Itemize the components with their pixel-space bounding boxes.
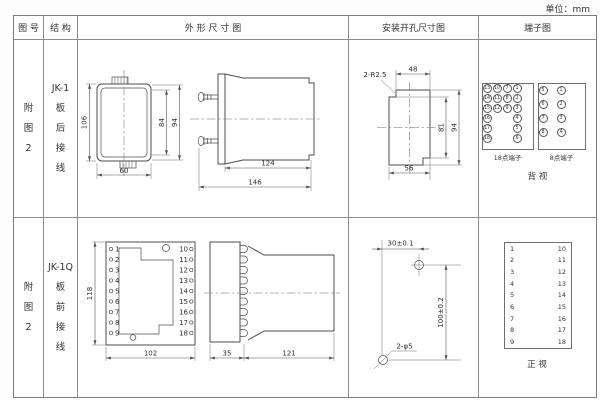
terminal-list-row: 312 [505, 269, 571, 276]
jk1q-side-terminals [240, 246, 248, 337]
terminal-point: 13 [483, 84, 492, 93]
unit-label: 单位：mm [545, 2, 590, 15]
header-structure: 结 构 [44, 16, 78, 40]
terminal-label-18: 18点端子 [479, 152, 536, 162]
wiring-char: 接 [56, 318, 66, 338]
terminal-point: 5 [539, 86, 548, 95]
terminal-number: 2 [510, 257, 514, 264]
terminal-number: 4 [510, 281, 514, 288]
dim-30-label: 30±0.1 [388, 240, 414, 248]
terminal-list-row: 615 [505, 304, 571, 311]
terminal-number: 18 [558, 339, 566, 346]
terminal-number: 5 [115, 287, 119, 295]
terminal-screw-icon [240, 319, 248, 326]
terminal-list-box: 110211312413514615716817918 [504, 242, 572, 349]
row1-terminal-cell: 18点端子 8点端子 背 视 1310711411821512931641751… [479, 40, 596, 218]
header-mounting: 安装开孔尺寸图 [349, 16, 479, 40]
terminal-number: 9 [510, 339, 514, 346]
rear-view-label: 背 视 [479, 170, 596, 182]
terminal-screw-icon [240, 288, 248, 295]
header-fig-no: 图 号 [14, 16, 44, 40]
terminal-list-row: 514 [505, 292, 571, 299]
fig-char: 附 [24, 99, 34, 119]
dim-102-label: 102 [144, 350, 157, 358]
wiring-char: 线 [56, 338, 66, 358]
fig-char: 2 [25, 139, 31, 159]
extension-lines [374, 240, 461, 369]
jk1-side-view [190, 74, 321, 164]
terminal-number: 15 [179, 298, 188, 306]
terminal-number: 8 [510, 327, 514, 334]
dimension-lines [95, 242, 334, 358]
hole-size-label: 2-φ5 [396, 343, 412, 351]
row1-structure: JK-1 板 后 接 线 [44, 40, 78, 218]
dim-84-label: 84 [158, 118, 166, 127]
terminal-point: 15 [483, 104, 492, 113]
terminal-point: 17 [483, 124, 492, 133]
row1-model: JK-1 [52, 79, 70, 99]
terminal-number: 16 [179, 308, 188, 316]
terminal-list-row: 211 [505, 257, 571, 264]
terminal-point: 3 [557, 114, 566, 123]
terminal-point: 8 [539, 128, 548, 137]
terminal-number: 9 [115, 329, 119, 337]
row2-model: JK-1Q [48, 258, 73, 278]
terminal-screw-icon [240, 246, 248, 253]
terminal-number: 7 [510, 316, 514, 323]
wiring-char: 板 [56, 99, 66, 119]
mounting-hole-icon [130, 335, 136, 341]
dim-35-label: 35 [223, 350, 232, 358]
terminal-list-row: 817 [505, 327, 571, 334]
jk1q-mounting-hole-drawing: 30±0.1 100±0.2 2-φ5 [349, 218, 479, 397]
mounting-hole-icon [163, 245, 170, 252]
dim-106-label: 106 [81, 115, 89, 129]
terminal-number: 16 [558, 316, 566, 323]
terminal-dot-icon [190, 310, 193, 313]
terminal-point: 2 [557, 100, 566, 109]
terminal-point: 12 [493, 104, 502, 113]
wiring-char: 接 [56, 139, 66, 159]
terminal-dot-icon [109, 279, 112, 282]
terminal-point: 16 [483, 114, 492, 123]
terminal-number: 17 [558, 327, 566, 334]
terminal-dot-icon [190, 268, 193, 271]
fig-char: 图 [24, 298, 34, 318]
jk1-mounting-hole-drawing: 2-R2.5 48 56 81 94 [349, 40, 479, 218]
terminal-dot-icon [109, 331, 112, 334]
terminal-dot-icon [190, 300, 193, 303]
terminal-number: 7 [115, 308, 119, 316]
jk1q-front-view: 110211312413514615716817918 [106, 242, 195, 345]
terminal-dot-icon [109, 247, 112, 250]
terminal-number: 15 [558, 304, 566, 311]
terminal-point: 11 [493, 94, 502, 103]
terminal-number: 10 [179, 245, 188, 253]
terminal-dot-icon [190, 331, 193, 334]
row2-outline-cell: 110211312413514615716817918 [78, 218, 349, 397]
manual-page: 单位：mm 图 号 结 构 外 形 尺 寸 图 安装开孔尺寸图 端子图 附 图 … [0, 0, 600, 400]
terminal-dot-icon [109, 310, 112, 313]
terminal-number: 18 [179, 329, 188, 337]
terminal-dot-icon [190, 289, 193, 292]
terminal-dot-icon [109, 300, 112, 303]
dim-56-label: 56 [405, 165, 414, 173]
terminal-number: 5 [510, 292, 514, 299]
fig-char: 图 [24, 119, 34, 139]
dim-60-label: 60 [120, 167, 129, 175]
terminal-number: 6 [510, 304, 514, 311]
terminal-number: 8 [115, 319, 119, 327]
row1-mounting-cell: 2-R2.5 48 56 81 94 [349, 40, 479, 218]
jk1q-outline-drawing: 110211312413514615716817918 [78, 218, 349, 397]
terminal-list-row: 413 [505, 281, 571, 288]
terminal-screw-icon [240, 267, 248, 274]
row2-structure: JK-1Q 板 前 接 线 [44, 218, 78, 397]
fig-char: 2 [25, 318, 31, 338]
terminal-number: 1 [115, 245, 119, 253]
jk1q-front-terminals: 110211312413514615716817918 [109, 245, 193, 337]
row2-terminal-cell: 110211312413514615716817918 正 视 [479, 218, 596, 397]
terminal-dot-icon [190, 321, 193, 324]
dim-94-label: 94 [171, 118, 179, 127]
header-outline: 外 形 尺 寸 图 [78, 16, 349, 40]
dim-124-label: 124 [261, 160, 275, 168]
terminal-number: 11 [558, 257, 566, 264]
terminal-dot-icon [190, 279, 193, 282]
terminal-number: 2 [115, 256, 119, 264]
dim-81-label: 81 [438, 123, 446, 132]
terminal-point: 4 [557, 128, 566, 137]
terminal-number: 14 [558, 292, 566, 299]
wiring-char: 前 [56, 298, 66, 318]
terminal-screw-icon [240, 309, 248, 316]
terminal-number: 3 [510, 269, 514, 276]
dim-100-label: 100±0.2 [437, 297, 445, 327]
dim-121-label: 121 [282, 350, 295, 358]
spec-table: 图 号 结 构 外 形 尺 寸 图 安装开孔尺寸图 端子图 附 图 2 JK-1… [13, 15, 597, 398]
terminal-dot-icon [109, 321, 112, 324]
row2-mounting-cell: 30±0.1 100±0.2 2-φ5 [349, 218, 479, 397]
terminal-list-row: 110 [505, 246, 571, 253]
terminal-dot-icon [190, 247, 193, 250]
terminal-number: 11 [179, 256, 188, 264]
fig-char: 附 [24, 278, 34, 298]
terminal-dot-icon [190, 258, 193, 261]
terminal-screw-icon [240, 298, 248, 305]
terminal-point: 18 [483, 134, 492, 143]
jk1-outline-drawing: 106 60 84 94 124 146 [78, 40, 349, 218]
dim-48-label: 48 [409, 66, 418, 74]
terminal-point: 6 [513, 134, 522, 143]
wiring-char: 板 [56, 278, 66, 298]
terminal-point: 7 [503, 84, 512, 93]
terminal-number: 6 [115, 298, 120, 306]
terminal-screw-icon [240, 256, 248, 263]
terminal-point: 3 [513, 104, 522, 113]
terminal-number: 12 [179, 266, 188, 274]
terminal-number: 12 [558, 269, 566, 276]
terminal-point: 9 [503, 104, 512, 113]
terminal-list-row: 918 [505, 339, 571, 346]
terminal-point: 1 [513, 84, 522, 93]
terminal-point: 14 [483, 94, 492, 103]
wiring-char: 线 [56, 159, 66, 179]
jk1q-side-view [204, 242, 340, 342]
terminal-point: 2 [513, 94, 522, 103]
terminal-number: 14 [179, 287, 188, 295]
terminal-dot-icon [109, 268, 112, 271]
row1-fig-no: 附 图 2 [14, 40, 44, 218]
dim-146-label: 146 [248, 179, 262, 187]
row2-fig-no: 附 图 2 [14, 218, 44, 397]
terminal-label-8: 8点端子 [536, 152, 587, 162]
terminal-number: 1 [510, 246, 514, 253]
wiring-char: 后 [56, 119, 66, 139]
terminal-number: 13 [558, 281, 566, 288]
terminal-point: 5 [513, 124, 522, 133]
terminal-point: 1 [557, 86, 566, 95]
extension-lines [92, 242, 334, 361]
terminal-point: 6 [539, 100, 548, 109]
terminal-list-row: 716 [505, 316, 571, 323]
row1-outline-cell: 106 60 84 94 124 146 [78, 40, 349, 218]
terminal-number: 4 [115, 277, 120, 285]
terminal-number: 3 [115, 266, 119, 274]
terminal-number: 13 [179, 277, 188, 285]
terminal-point: 4 [513, 114, 522, 123]
terminal-screw-icon [240, 330, 248, 337]
terminal-point: 10 [493, 84, 502, 93]
front-view-label: 正 视 [504, 358, 570, 370]
dim-118-label: 118 [86, 287, 94, 300]
terminal-screw-icon [240, 277, 248, 284]
terminal-dot-icon [109, 289, 112, 292]
jk1-front-view [97, 70, 151, 176]
terminal-point: 7 [539, 114, 548, 123]
header-terminal: 端子图 [479, 16, 596, 40]
terminal-number: 17 [179, 319, 188, 327]
terminal-dot-icon [109, 258, 112, 261]
terminal-point: 8 [503, 94, 512, 103]
dim-94-label: 94 [451, 123, 459, 132]
terminal-number: 10 [558, 246, 566, 253]
radius-label: 2-R2.5 [364, 71, 387, 79]
